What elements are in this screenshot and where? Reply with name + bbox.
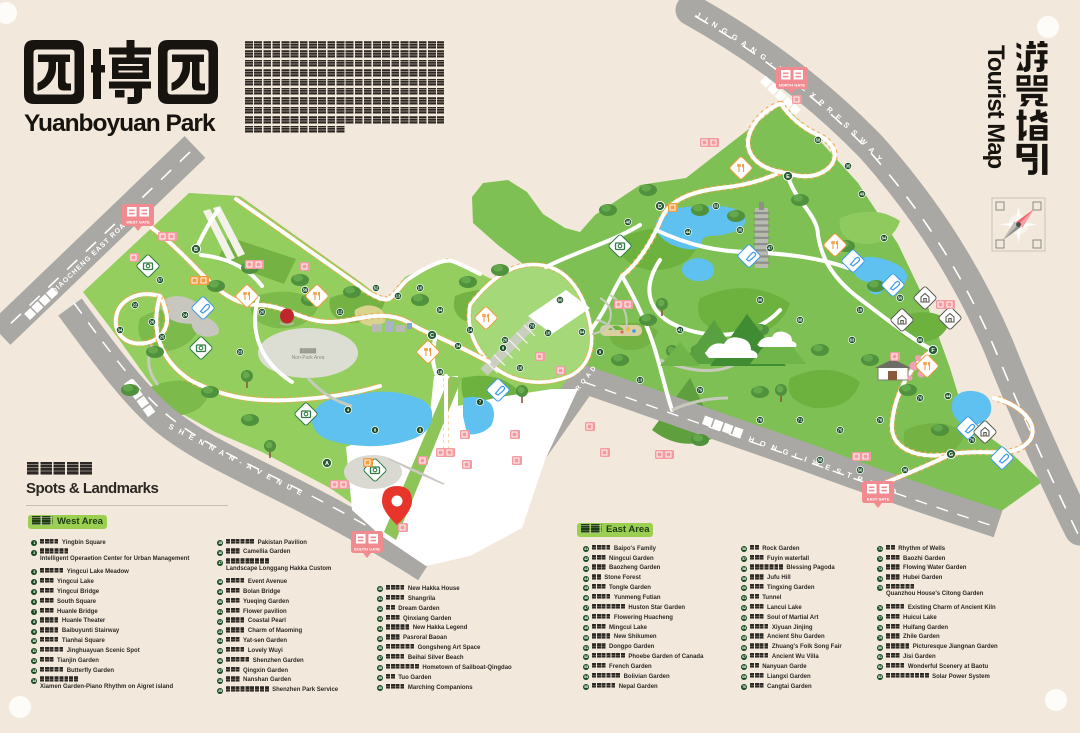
svg-text:A: A: [325, 461, 329, 467]
svg-text:20: 20: [260, 310, 265, 315]
svg-text:41: 41: [678, 328, 683, 333]
svg-text:Tourist Map: Tourist Map: [983, 45, 1009, 169]
svg-text:66: 66: [758, 298, 763, 303]
svg-text:EAST GATE: EAST GATE: [867, 497, 890, 502]
svg-text:14: 14: [468, 328, 473, 333]
svg-text:35: 35: [846, 164, 851, 169]
svg-text:64: 64: [882, 236, 887, 241]
svg-text:19: 19: [858, 308, 863, 313]
svg-text:59: 59: [303, 288, 308, 293]
svg-text:58: 58: [818, 458, 823, 463]
svg-text:52: 52: [374, 286, 379, 291]
svg-text:24: 24: [183, 313, 188, 318]
svg-text:60: 60: [558, 298, 563, 303]
svg-text:63: 63: [850, 338, 855, 343]
svg-text:78: 78: [758, 418, 763, 423]
svg-text:B: B: [194, 247, 198, 253]
svg-text:79: 79: [698, 388, 703, 393]
svg-text:10: 10: [418, 286, 423, 291]
svg-text:53: 53: [714, 204, 719, 209]
svg-text:58: 58: [816, 138, 821, 143]
svg-text:26: 26: [150, 320, 155, 325]
svg-text:66: 66: [918, 338, 923, 343]
svg-text:44: 44: [946, 394, 951, 399]
svg-text:SOUTH GATE: SOUTH GATE: [354, 547, 380, 552]
svg-text:16: 16: [518, 366, 523, 371]
svg-text:34: 34: [438, 308, 443, 313]
svg-text:35: 35: [738, 228, 743, 233]
svg-text:78: 78: [878, 418, 883, 423]
svg-text:73: 73: [530, 324, 535, 329]
svg-text:NORTH GATE: NORTH GATE: [779, 83, 805, 88]
svg-text:57: 57: [158, 278, 163, 283]
svg-text:36: 36: [903, 468, 908, 473]
svg-text:59: 59: [898, 296, 903, 301]
svg-text:19: 19: [438, 370, 443, 375]
svg-text:22: 22: [133, 303, 138, 308]
svg-text:34: 34: [456, 344, 461, 349]
svg-text:13: 13: [396, 294, 401, 299]
svg-text:64: 64: [580, 330, 585, 335]
svg-text:25: 25: [160, 335, 165, 340]
svg-text:70: 70: [918, 396, 923, 401]
svg-text:20: 20: [503, 338, 508, 343]
svg-text:71: 71: [798, 418, 803, 423]
svg-text:G: G: [949, 452, 953, 458]
svg-text:44: 44: [686, 230, 691, 235]
svg-text:C: C: [430, 333, 434, 339]
svg-text:47: 47: [768, 246, 773, 251]
svg-text:12: 12: [338, 310, 343, 315]
svg-text:68: 68: [798, 318, 803, 323]
svg-text:49: 49: [860, 192, 865, 197]
svg-text:23: 23: [238, 350, 243, 355]
svg-text:10: 10: [546, 331, 551, 336]
svg-text:48: 48: [626, 220, 631, 225]
svg-text:D: D: [658, 204, 662, 210]
svg-text:75: 75: [838, 428, 843, 433]
svg-text:Non-Park Area: Non-Park Area: [292, 355, 325, 361]
svg-text:34: 34: [118, 328, 123, 333]
svg-text:56: 56: [858, 468, 863, 473]
svg-text:E: E: [786, 174, 790, 180]
svg-text:WEST GATE: WEST GATE: [126, 220, 150, 225]
svg-text:13: 13: [638, 378, 643, 383]
